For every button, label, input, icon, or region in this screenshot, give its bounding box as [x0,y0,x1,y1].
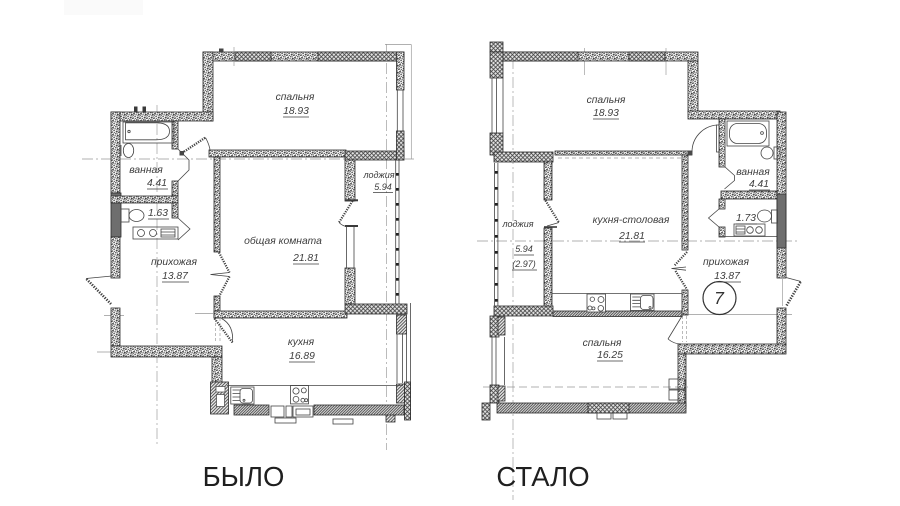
svg-text:21.81: 21.81 [618,231,645,242]
svg-text:СТАЛО: СТАЛО [496,461,589,492]
svg-text:4.41: 4.41 [749,179,769,190]
svg-text:5.94: 5.94 [515,244,533,254]
svg-text:13.87: 13.87 [162,271,189,282]
svg-text:7: 7 [714,288,725,308]
svg-text:спальня: спальня [587,95,626,106]
svg-text:(2.97): (2.97) [512,259,536,269]
svg-text:прихожая: прихожая [703,257,749,268]
svg-text:БЫЛО: БЫЛО [203,461,285,492]
svg-text:16.25: 16.25 [597,350,623,361]
svg-text:общая комната: общая комната [244,235,322,247]
svg-text:18.93: 18.93 [593,108,619,119]
svg-text:16.89: 16.89 [289,351,315,362]
svg-text:1.63: 1.63 [148,208,168,219]
svg-text:1.73: 1.73 [736,213,756,224]
svg-text:кухня: кухня [288,337,315,348]
svg-text:лоджия: лоджия [362,170,394,180]
svg-text:кухня-столовая: кухня-столовая [593,215,670,226]
svg-text:4.41: 4.41 [147,178,167,189]
svg-text:21.81: 21.81 [292,253,319,264]
svg-text:спальня: спальня [276,92,315,103]
svg-text:18.93: 18.93 [283,106,309,117]
svg-text:5.94: 5.94 [374,182,392,192]
svg-text:ванная: ванная [129,165,163,176]
svg-text:лоджия: лоджия [501,219,533,229]
svg-text:спальня: спальня [583,338,622,349]
svg-text:прихожая: прихожая [151,257,197,268]
svg-text:ванная: ванная [736,167,770,178]
svg-text:13.87: 13.87 [714,271,741,282]
